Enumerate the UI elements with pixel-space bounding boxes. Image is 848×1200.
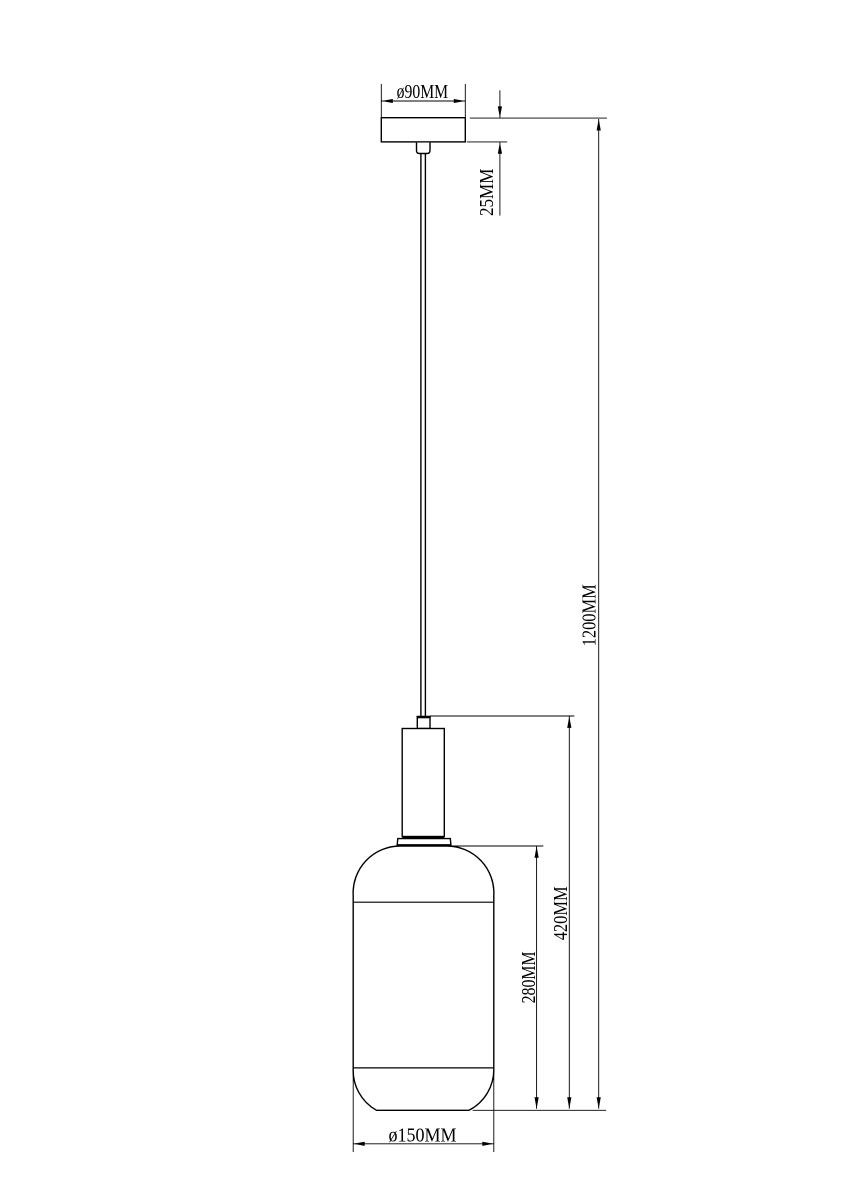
svg-text:1200MM: 1200MM: [578, 584, 600, 646]
svg-text:420MM: 420MM: [550, 886, 572, 940]
svg-text:25MM: 25MM: [476, 168, 498, 216]
svg-text:280MM: 280MM: [518, 951, 540, 1003]
svg-text:ø150MM: ø150MM: [389, 1124, 457, 1146]
svg-text:ø90MM: ø90MM: [397, 81, 449, 103]
